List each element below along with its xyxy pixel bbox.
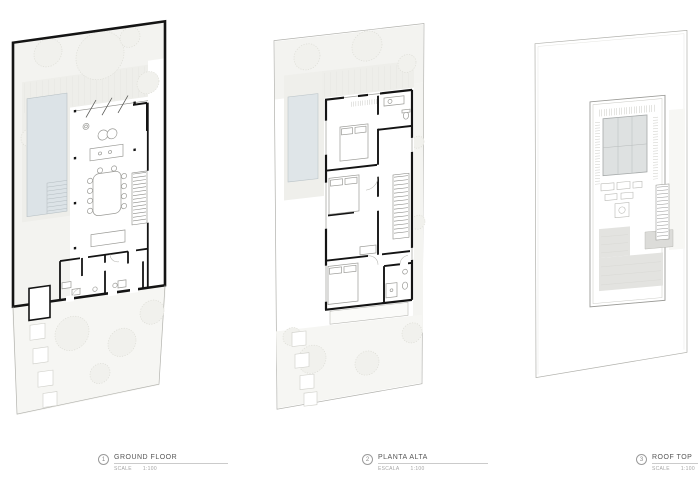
plan-scale: SCALE 1:100 — [652, 466, 698, 472]
upper-floor-drawing — [272, 21, 427, 412]
ground-floor-label: 1 GROUND FLOOR SCALE 1:100 — [98, 454, 228, 472]
scale-value: 1:100 — [143, 466, 157, 472]
roof-top-drawing — [533, 28, 690, 405]
pool — [27, 93, 67, 217]
skylight-panel — [603, 115, 647, 176]
plan-scale: ESCALA 1:100 — [378, 466, 488, 472]
upper-floor-label: 2 PLANTA ALTA ESCALA 1:100 — [362, 454, 488, 472]
plan-number-badge: 1 — [98, 454, 109, 465]
closet — [360, 245, 376, 255]
stairs — [132, 171, 147, 225]
scale-label: SCALE — [652, 466, 670, 472]
plan-title: GROUND FLOOR — [114, 454, 228, 464]
plan-number-badge: 3 — [636, 454, 647, 465]
upper-floor-plan — [272, 21, 427, 412]
stairs — [656, 184, 669, 240]
plan-number-badge: 2 — [362, 454, 373, 465]
scale-label: ESCALA — [378, 466, 400, 472]
scale-label: SCALE — [114, 466, 132, 472]
label-text: ROOF TOP SCALE 1:100 — [652, 454, 698, 472]
scale-value: 1:100 — [411, 466, 425, 472]
ground-floor-plan — [10, 18, 168, 418]
label-text: PLANTA ALTA ESCALA 1:100 — [378, 454, 488, 472]
side-texture — [669, 109, 685, 250]
ground-floor-drawing — [10, 18, 168, 418]
architectural-sheet: 1 GROUND FLOOR SCALE 1:100 2 PLANTA ALTA… — [0, 0, 700, 479]
dining-table — [93, 171, 121, 217]
roof-top-plan — [533, 28, 690, 405]
entry-vestibule — [29, 285, 50, 320]
plan-title: ROOF TOP — [652, 454, 698, 464]
stairs — [393, 173, 409, 239]
scale-value: 1:100 — [681, 466, 695, 472]
pool-below — [288, 94, 318, 182]
roof-top-label: 3 ROOF TOP SCALE 1:100 — [636, 454, 698, 472]
plan-scale: SCALE 1:100 — [114, 466, 228, 472]
label-text: GROUND FLOOR SCALE 1:100 — [114, 454, 228, 472]
plan-title: PLANTA ALTA — [378, 454, 488, 464]
